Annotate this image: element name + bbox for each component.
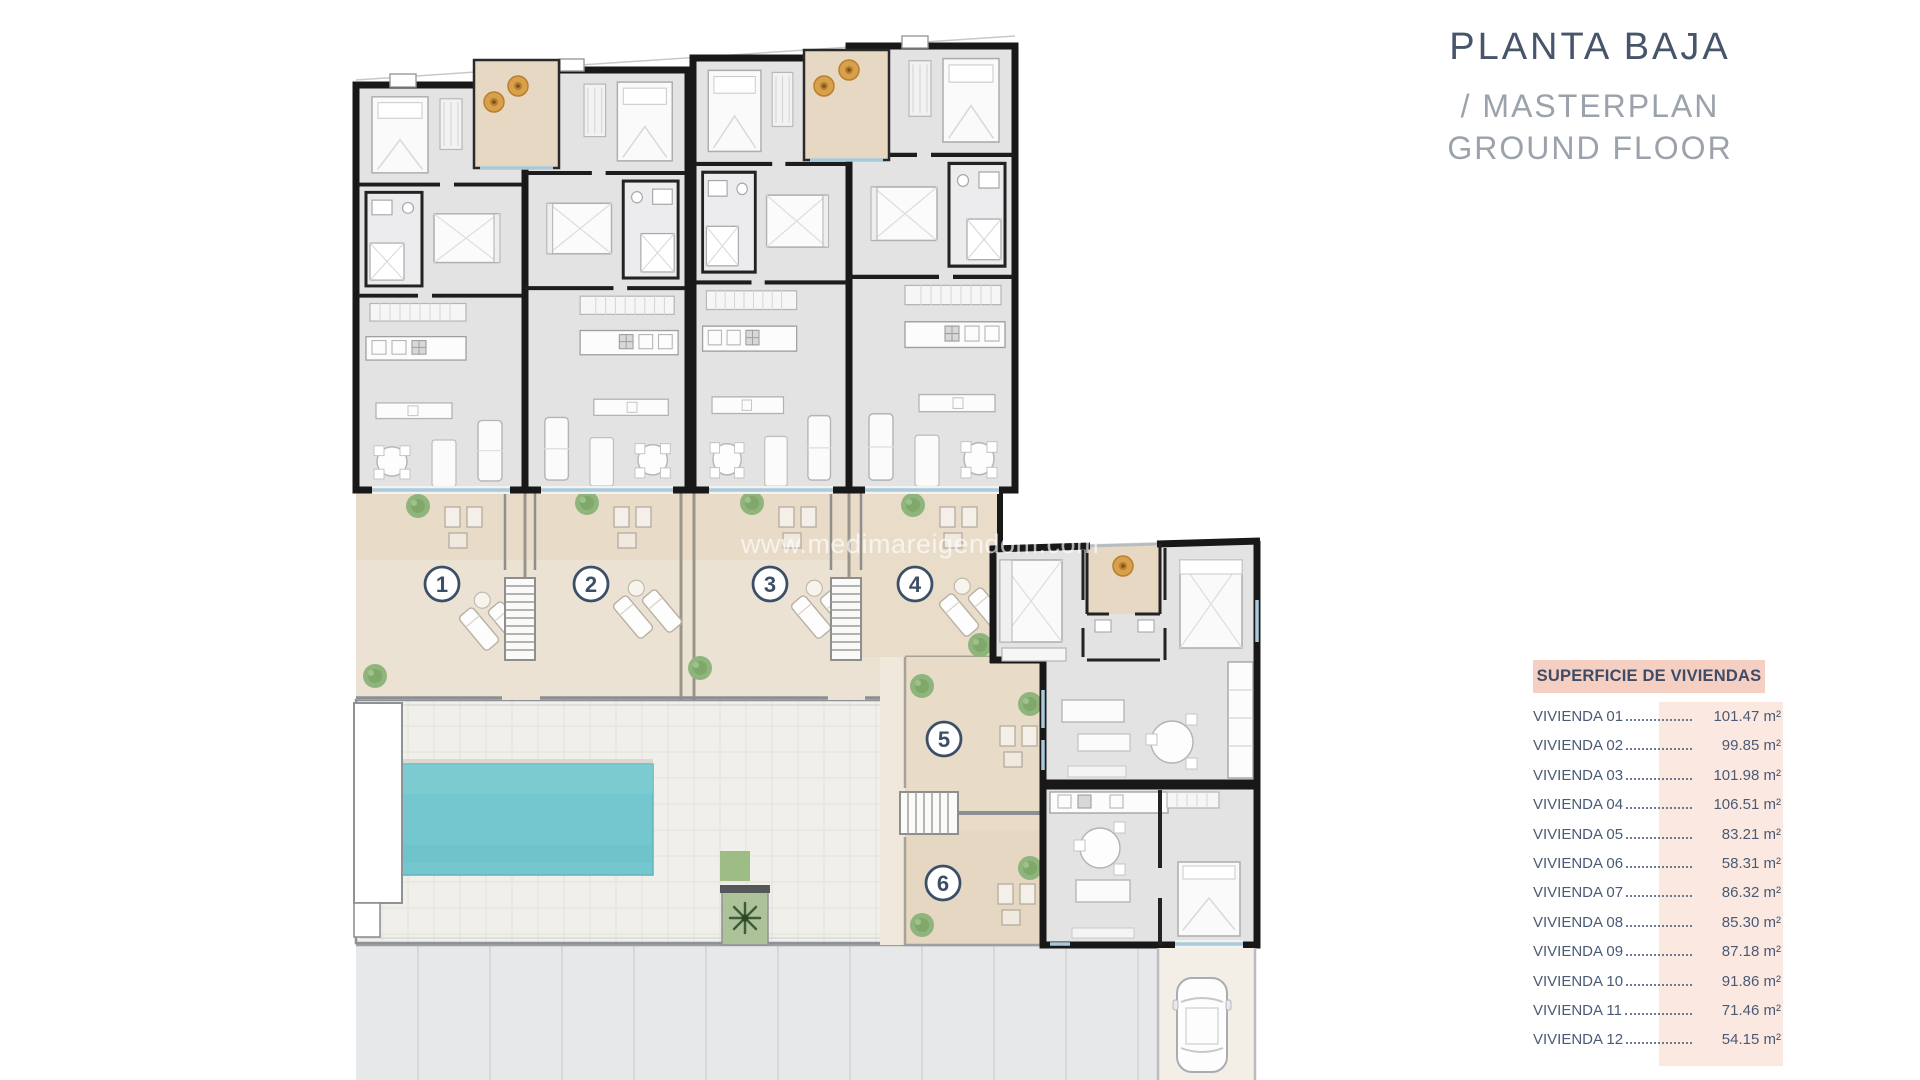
car-icon (1173, 978, 1231, 1072)
right-block-lower (1043, 786, 1257, 945)
road (356, 945, 1158, 1080)
dot-leader (1626, 719, 1692, 721)
unit-label: VIVIENDA 11 (1533, 1002, 1622, 1019)
orange-tree-icon (484, 92, 504, 112)
unit-area: 85.30 m² (1695, 914, 1785, 931)
grass-square (720, 851, 750, 881)
stairs (900, 792, 958, 834)
deck-planter (354, 703, 402, 903)
svg-text:1: 1 (436, 572, 448, 597)
svg-text:4: 4 (909, 572, 922, 597)
bush-icon (688, 656, 712, 680)
unit-area: 54.15 m² (1695, 1031, 1785, 1048)
dot-leader (1625, 1013, 1692, 1015)
pool-edge-step (403, 759, 653, 763)
palm-tree-icon (730, 903, 760, 933)
bush-icon (363, 664, 387, 688)
table-row: VIVIENDA 1171.46 m² (1533, 1002, 1785, 1031)
unit-label: VIVIENDA 08 (1533, 914, 1623, 931)
table-row: VIVIENDA 0786.32 m² (1533, 884, 1785, 913)
unit-marker-1: 1 (425, 567, 459, 601)
unit-label: VIVIENDA 09 (1533, 943, 1623, 960)
subtitle-line-1: / MASTERPLAN (1370, 85, 1810, 127)
surface-table-header: SUPERFICIE DE VIVIENDAS (1533, 660, 1765, 693)
unit-marker-2: 2 (574, 567, 608, 601)
unit-marker-3: 3 (753, 567, 787, 601)
dot-leader (1626, 748, 1692, 750)
svg-text:2: 2 (585, 572, 597, 597)
table-row: VIVIENDA 0987.18 m² (1533, 943, 1785, 972)
table-row: VIVIENDA 0658.31 m² (1533, 855, 1785, 884)
dining-table (1080, 828, 1120, 868)
driveway (1158, 948, 1435, 1080)
top-units-block (356, 36, 1015, 490)
unit-area: 58.31 m² (1695, 855, 1785, 872)
entry-patio (474, 60, 559, 168)
orange-tree-icon (814, 76, 834, 96)
unit-area: 91.86 m² (1695, 973, 1785, 990)
unit-marker-6: 6 (926, 866, 960, 900)
dot-leader (1626, 984, 1692, 986)
dot-leader (1626, 925, 1692, 927)
table-row: VIVIENDA 0885.30 m² (1533, 914, 1785, 943)
bush-icon (406, 494, 430, 518)
unit-area: 87.18 m² (1695, 943, 1785, 960)
unit-area: 101.98 m² (1695, 767, 1785, 784)
svg-text:6: 6 (937, 871, 949, 896)
bush-icon (968, 633, 992, 657)
table-row: VIVIENDA 04106.51 m² (1533, 796, 1785, 825)
pool-deck (354, 700, 905, 945)
table-row: VIVIENDA 1254.15 m² (1533, 1031, 1785, 1060)
page: 1 2 3 4 5 6 www.medimare (0, 0, 1920, 1080)
table-row: VIVIENDA 0583.21 m² (1533, 826, 1785, 855)
subtitle-line-2: GROUND FLOOR (1370, 127, 1810, 169)
bush-icon (575, 491, 599, 515)
unit-label: VIVIENDA 02 (1533, 737, 1623, 754)
table-row: VIVIENDA 1091.86 m² (1533, 973, 1785, 1002)
dot-leader (1626, 807, 1692, 809)
svg-text:3: 3 (764, 572, 776, 597)
unit-label: VIVIENDA 05 (1533, 826, 1623, 843)
table-row: VIVIENDA 0299.85 m² (1533, 737, 1785, 766)
unit-label: VIVIENDA 04 (1533, 796, 1623, 813)
bush-icon (1018, 856, 1042, 880)
orange-tree-icon (508, 76, 528, 96)
dot-leader (1626, 866, 1692, 868)
unit-area: 101.47 m² (1695, 708, 1785, 725)
bush-icon (1018, 692, 1042, 716)
page-title: PLANTA BAJA (1370, 26, 1810, 69)
unit-label: VIVIENDA 12 (1533, 1031, 1623, 1048)
orange-tree-icon (1113, 556, 1133, 576)
unit-label: VIVIENDA 03 (1533, 767, 1623, 784)
entry-patio (804, 50, 889, 160)
dot-leader (1626, 895, 1692, 897)
dot-leader (1626, 778, 1692, 780)
orange-tree-icon (839, 60, 859, 80)
bush-icon (910, 913, 934, 937)
page-subtitle: / MASTERPLAN GROUND FLOOR (1370, 85, 1810, 169)
dot-leader (1626, 837, 1692, 839)
table-row: VIVIENDA 01101.47 m² (1533, 708, 1785, 737)
unit-marker-5: 5 (927, 722, 961, 756)
unit-area: 86.32 m² (1695, 884, 1785, 901)
unit-label: VIVIENDA 10 (1533, 973, 1623, 990)
surface-table-rows: VIVIENDA 01101.47 m² VIVIENDA 0299.85 m²… (1533, 708, 1785, 1061)
unit-label: VIVIENDA 06 (1533, 855, 1623, 872)
title-block: PLANTA BAJA / MASTERPLAN GROUND FLOOR (1370, 26, 1810, 169)
dot-leader (1626, 1042, 1692, 1044)
table-row: VIVIENDA 03101.98 m² (1533, 767, 1785, 796)
unit-area: 106.51 m² (1695, 796, 1785, 813)
bush-icon (901, 493, 925, 517)
palm-planter (720, 885, 770, 945)
surface-table: SUPERFICIE DE VIVIENDAS VIVIENDA 01101.4… (1533, 660, 1785, 1061)
svg-text:5: 5 (938, 727, 950, 752)
bush-icon (910, 674, 934, 698)
unit-label: VIVIENDA 01 (1533, 708, 1623, 725)
unit-area: 99.85 m² (1695, 737, 1785, 754)
unit-label: VIVIENDA 07 (1533, 884, 1623, 901)
bush-icon (740, 491, 764, 515)
unit-marker-4: 4 (898, 567, 932, 601)
unit-area: 71.46 m² (1695, 1002, 1785, 1019)
unit-area: 83.21 m² (1695, 826, 1785, 843)
dot-leader (1626, 954, 1692, 956)
